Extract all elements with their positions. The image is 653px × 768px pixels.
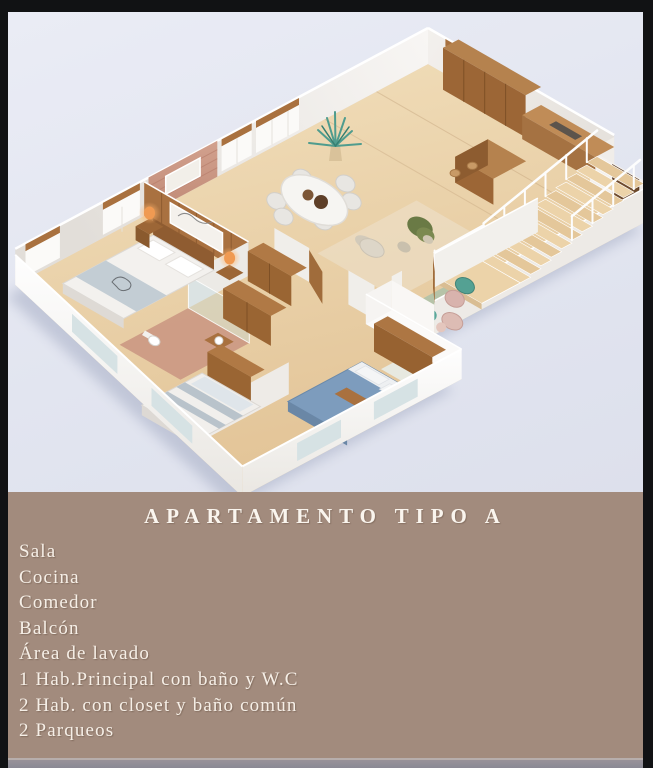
- table-decor: [303, 190, 314, 201]
- bottom-bar: [8, 758, 643, 768]
- floorplan-render: [8, 12, 643, 492]
- feature-item: Cocina: [19, 565, 643, 591]
- info-panel: APARTAMENTO TIPO A Sala Cocina Comedor B…: [8, 492, 643, 758]
- feature-item: Sala: [19, 539, 643, 565]
- bar-stool: [467, 162, 477, 169]
- feature-item: Área de lavado: [19, 641, 643, 667]
- feature-item: 1 Hab.Principal con baño y W.C: [19, 667, 643, 693]
- bar-stool: [450, 170, 460, 177]
- pink-cushion: [436, 322, 446, 332]
- feature-item: Comedor: [19, 590, 643, 616]
- features-list: Sala Cocina Comedor Balcón Área de lavad…: [8, 539, 643, 744]
- black-frame: APARTAMENTO TIPO A Sala Cocina Comedor B…: [0, 0, 653, 768]
- feature-item: 2 Hab. con closet y baño común: [19, 693, 643, 719]
- page-title: APARTAMENTO TIPO A: [16, 504, 635, 529]
- lamp: [224, 252, 235, 265]
- floorplan-3d-svg: [8, 12, 643, 492]
- feature-item: Balcón: [19, 616, 643, 642]
- lamp: [144, 207, 155, 220]
- sink: [215, 337, 223, 345]
- table-decor: [314, 195, 328, 209]
- feature-item: 2 Parqueos: [19, 718, 643, 744]
